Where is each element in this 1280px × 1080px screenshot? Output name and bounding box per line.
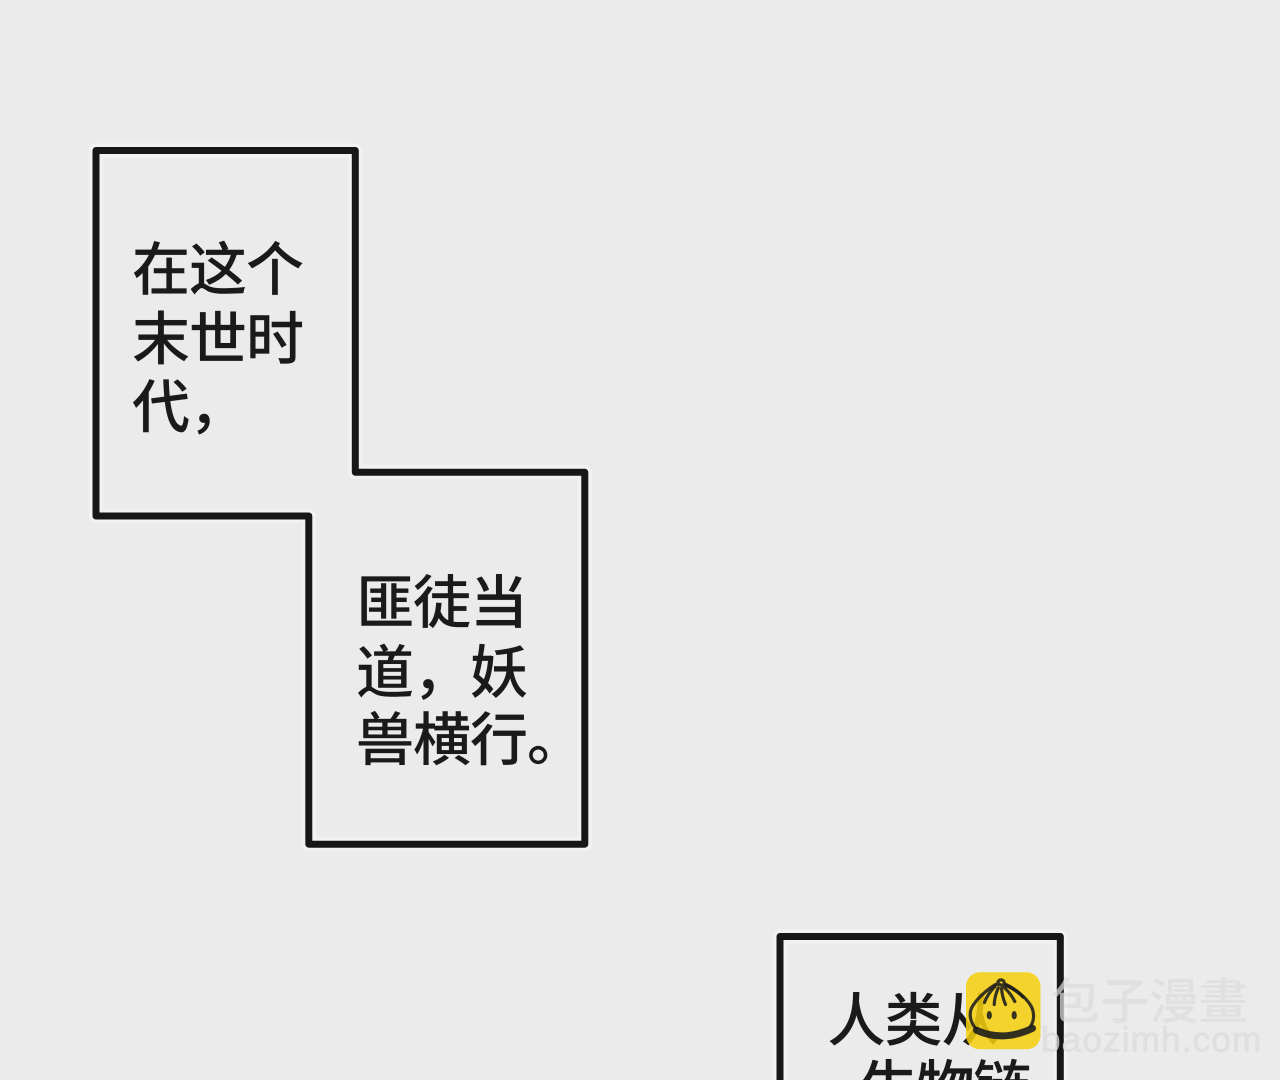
svg-text:baozimh.com: baozimh.com [1041,1021,1262,1060]
